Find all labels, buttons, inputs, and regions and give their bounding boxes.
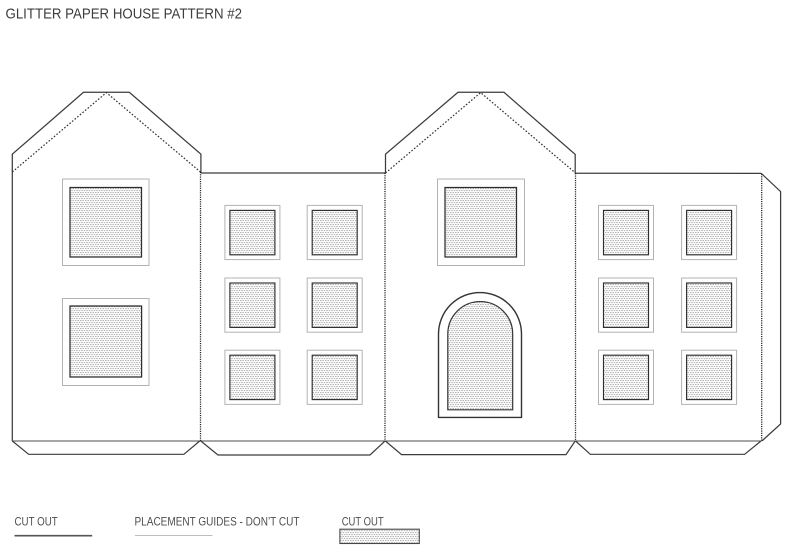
svg-text:GLITTER PAPER HOUSE PATTERN #2: GLITTER PAPER HOUSE PATTERN #2	[6, 6, 243, 22]
svg-text:CUT OUT: CUT OUT	[342, 516, 384, 529]
svg-text:CUT OUT: CUT OUT	[15, 516, 58, 529]
svg-text:PLACEMENT GUIDES - DON’T CUT: PLACEMENT GUIDES - DON’T CUT	[135, 516, 300, 529]
